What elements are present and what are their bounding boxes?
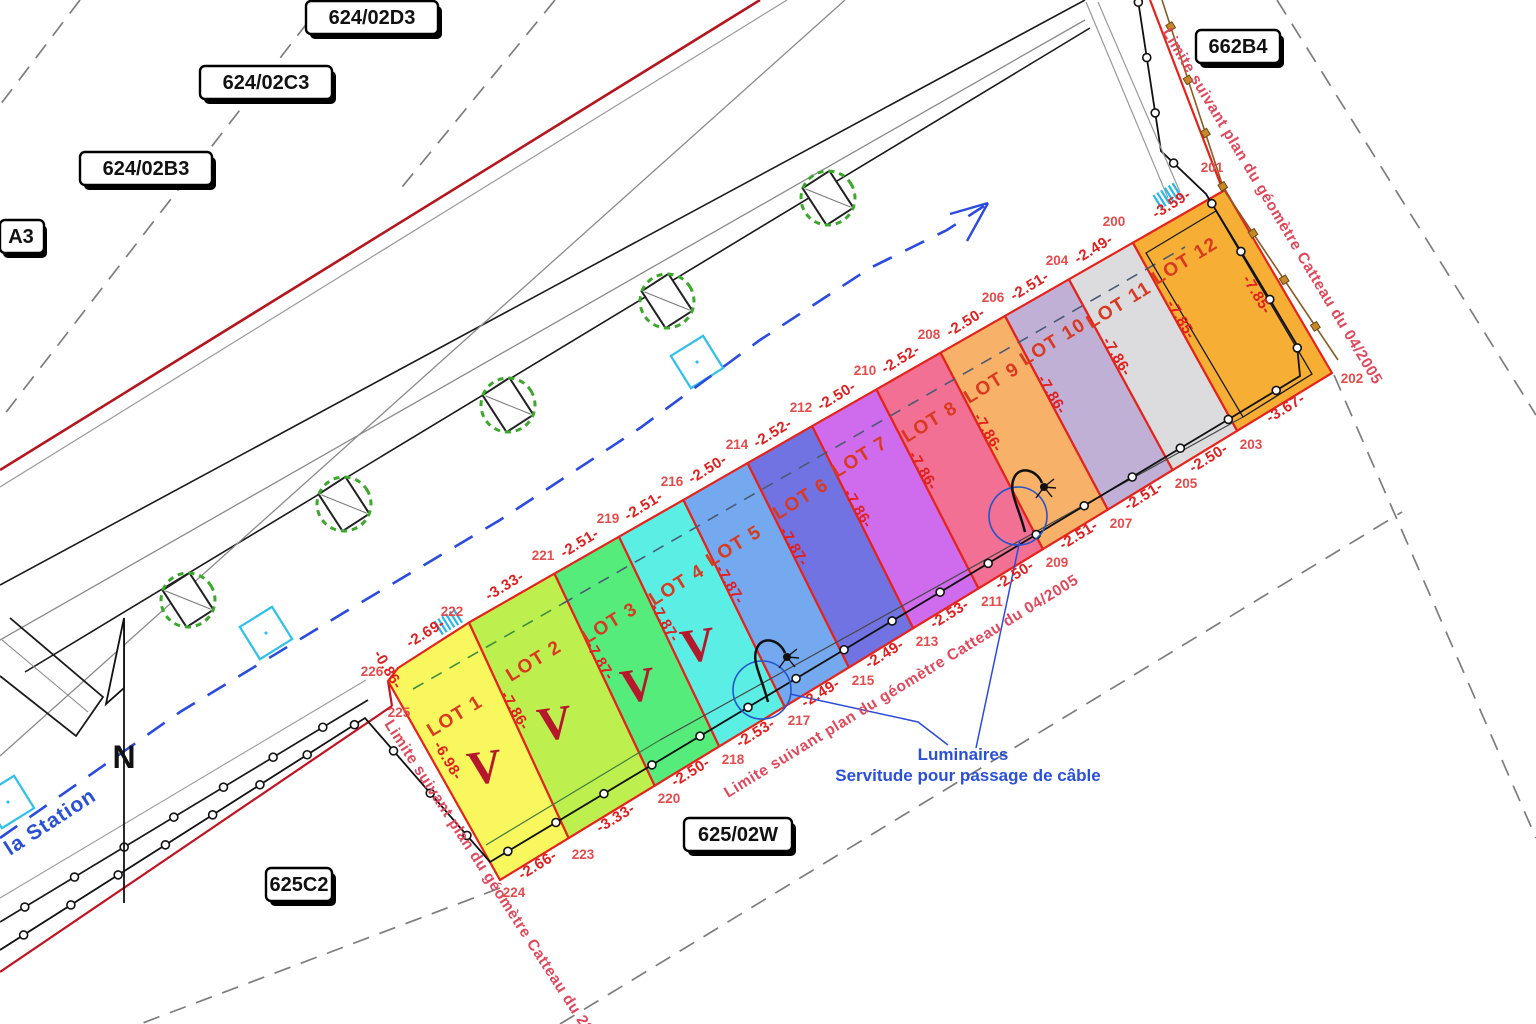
fence-post-circle xyxy=(600,790,608,798)
point-206: 206 xyxy=(982,290,1005,305)
red-limit-line-road xyxy=(0,706,392,972)
fence-post-circle xyxy=(1170,159,1178,167)
red-limit-line-northwest xyxy=(0,0,760,470)
point-203: 203 xyxy=(1240,437,1263,452)
fence-post-circle xyxy=(1176,444,1184,452)
fence-post-circle xyxy=(170,813,178,821)
fence-post-circle xyxy=(21,903,29,911)
svg-text:624/02D3: 624/02D3 xyxy=(329,7,416,29)
fence-post-circle xyxy=(209,811,217,819)
point-211: 211 xyxy=(981,594,1003,609)
point-217: 217 xyxy=(788,713,811,728)
fence-post-circle xyxy=(1143,54,1151,62)
tree-icon xyxy=(791,161,866,236)
fence-post-circle xyxy=(1293,344,1301,352)
fence-post-circle xyxy=(1237,247,1245,255)
tree-icon xyxy=(471,368,546,443)
point-220: 220 xyxy=(658,791,681,806)
parcel-box-625c2: 625C2 xyxy=(266,868,336,906)
svg-text:624/02B3: 624/02B3 xyxy=(103,158,190,180)
point-209: 209 xyxy=(1046,555,1069,570)
fence-post-circle xyxy=(70,873,78,881)
fence-post-circle xyxy=(350,721,358,729)
luminaires-label: Luminaires xyxy=(918,745,1009,764)
fence-post-circle xyxy=(696,732,704,740)
point-213: 213 xyxy=(916,634,939,649)
svg-text:624/02C3: 624/02C3 xyxy=(223,72,310,94)
fence-post-circle xyxy=(1134,0,1142,6)
fence-post-circle xyxy=(840,646,848,654)
fence-post-circle xyxy=(552,819,560,827)
fence-post-circle xyxy=(1032,531,1040,539)
fence-post-circle xyxy=(67,901,75,909)
point-210: 210 xyxy=(854,363,877,378)
fence-post-circle xyxy=(219,783,227,791)
fence-post-circle xyxy=(303,751,311,759)
point-201: 201 xyxy=(1201,160,1224,175)
fence-post-circle xyxy=(1208,200,1216,208)
servitude-label: Servitude pour passage de câble xyxy=(835,766,1100,785)
parcel-box-625-02w: 625/02W xyxy=(684,818,796,856)
point-222: 222 xyxy=(441,604,464,619)
point-221: 221 xyxy=(532,548,555,563)
point-200: 200 xyxy=(1103,214,1126,229)
parcel-box-624-02c3: 624/02C3 xyxy=(200,66,336,104)
fence-post-circle xyxy=(269,753,277,761)
tree-icon xyxy=(307,467,382,542)
fence-post-circle xyxy=(114,871,122,879)
plan-canvas: N LOT 1 LOT 2 LOT 3 LOT 4 LOT 5 LOT 6 LO… xyxy=(0,0,1536,1024)
parcel-box-624-02d3: 624/02D3 xyxy=(306,1,442,39)
point-214: 214 xyxy=(726,437,749,452)
fence-post-circle xyxy=(161,841,169,849)
fence-post-circle xyxy=(1224,415,1232,423)
cadastral-plan: N LOT 1 LOT 2 LOT 3 LOT 4 LOT 5 LOT 6 LO… xyxy=(0,0,1536,1024)
svg-text:625C2: 625C2 xyxy=(270,874,329,896)
fence-post-circle xyxy=(936,588,944,596)
north-arrow: N xyxy=(106,618,136,903)
svg-text:A3: A3 xyxy=(8,226,34,248)
fence-post-square xyxy=(1279,275,1289,285)
fence-post-circle xyxy=(648,761,656,769)
point-225: 225 xyxy=(388,705,411,720)
parcel-box-662b4: 662B4 xyxy=(1196,30,1284,68)
north-label: N xyxy=(112,739,135,775)
point-212: 212 xyxy=(790,400,813,415)
point-205: 205 xyxy=(1175,476,1198,491)
point-202: 202 xyxy=(1341,371,1364,386)
point-218: 218 xyxy=(722,752,745,767)
manhole-icon xyxy=(240,607,292,659)
svg-text:625/02W: 625/02W xyxy=(698,824,778,846)
fence-post-circle xyxy=(1080,502,1088,510)
parcel-box-a3: A3 xyxy=(0,220,47,258)
fence-post-circle xyxy=(256,781,264,789)
parcel-box-624-02b3: 624/02B3 xyxy=(80,152,216,190)
fence-post-circle xyxy=(1151,109,1159,117)
fence-post-circle xyxy=(792,675,800,683)
fence-post-circle xyxy=(504,847,512,855)
svg-text:662B4: 662B4 xyxy=(1209,36,1269,58)
tree-icon xyxy=(151,563,226,638)
fence-post-circle xyxy=(1128,473,1136,481)
fence-post-square xyxy=(1311,322,1321,332)
point-208: 208 xyxy=(918,327,941,342)
fence-post-circle xyxy=(744,703,752,711)
point-204: 204 xyxy=(1046,253,1069,268)
fence-post-circle xyxy=(319,723,327,731)
fence-post-circle xyxy=(984,559,992,567)
tree-icon xyxy=(630,264,705,339)
fence-post-circle xyxy=(1272,386,1280,394)
fence-post-circle xyxy=(888,617,896,625)
manhole-icon xyxy=(0,776,34,828)
point-207: 207 xyxy=(1110,516,1133,531)
manhole-icon xyxy=(671,336,723,388)
point-226: 226 xyxy=(361,664,384,679)
fence-post-circle xyxy=(20,931,28,939)
point-216: 216 xyxy=(661,474,684,489)
point-219: 219 xyxy=(597,511,620,526)
point-223: 223 xyxy=(572,847,595,862)
point-215: 215 xyxy=(852,673,875,688)
